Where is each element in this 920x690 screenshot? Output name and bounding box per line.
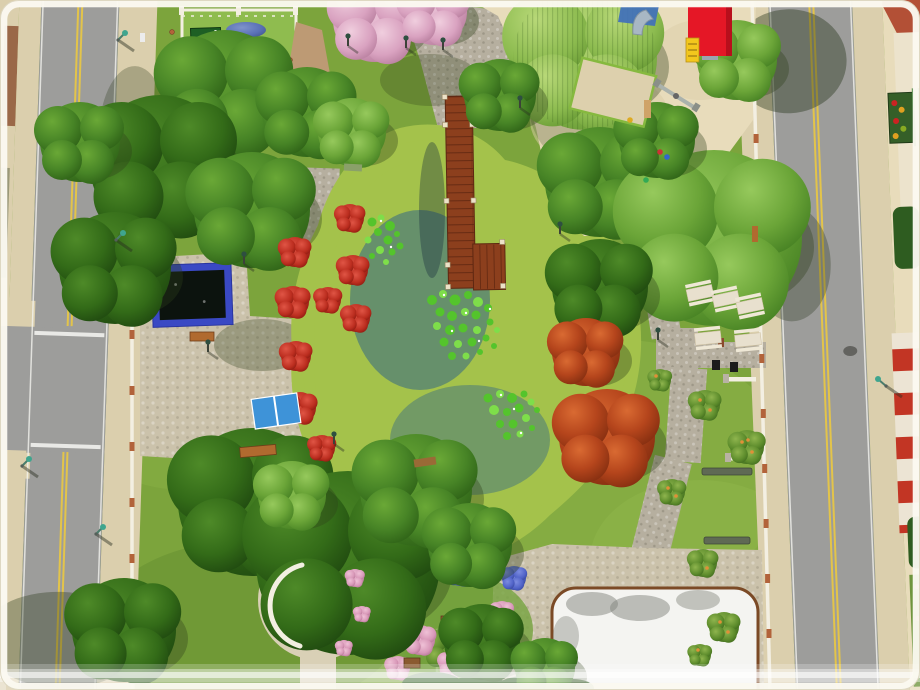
ping-pong-table[interactable] <box>251 393 301 429</box>
wall-cap <box>725 453 731 462</box>
climbing-frame[interactable] <box>686 6 732 62</box>
tree <box>459 59 548 133</box>
call-box <box>140 33 145 42</box>
low-wall <box>726 377 756 382</box>
dock-shadow <box>419 142 445 278</box>
tree <box>313 98 398 168</box>
park-bench[interactable] <box>752 226 758 242</box>
tree <box>34 102 132 184</box>
tree <box>253 461 338 531</box>
game-viewport[interactable] <box>0 0 920 690</box>
wall-cap <box>723 374 729 383</box>
screenshot-frame <box>0 0 920 690</box>
park-bench[interactable] <box>344 164 362 172</box>
glow-streak <box>0 672 920 678</box>
tree-shadow <box>610 595 670 621</box>
picnic-table[interactable] <box>734 328 762 353</box>
barbecue-grill[interactable] <box>730 362 738 372</box>
intersection <box>0 325 109 454</box>
autumn-tree <box>552 389 667 487</box>
picnic-table[interactable] <box>694 326 722 351</box>
path-junction <box>656 328 698 372</box>
barbecue-grill[interactable] <box>712 360 720 370</box>
sand-bench[interactable] <box>644 100 651 118</box>
tree-shadow <box>566 592 618 616</box>
tree <box>422 503 524 589</box>
tree-shadow <box>676 590 720 610</box>
autumn-tree <box>547 318 632 388</box>
park-bench[interactable] <box>190 332 214 341</box>
